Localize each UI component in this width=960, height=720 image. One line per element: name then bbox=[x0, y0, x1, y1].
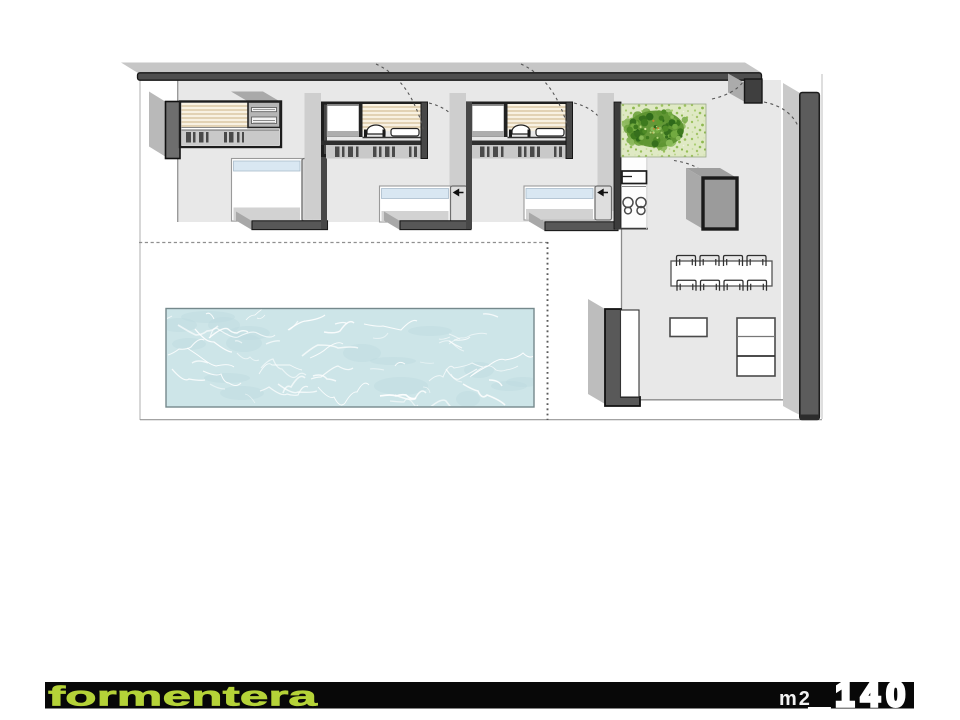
svg-text:m2: m2 bbox=[779, 688, 812, 710]
svg-text:formentera: formentera bbox=[48, 680, 318, 712]
svg-text:_140: _140 bbox=[809, 676, 912, 714]
